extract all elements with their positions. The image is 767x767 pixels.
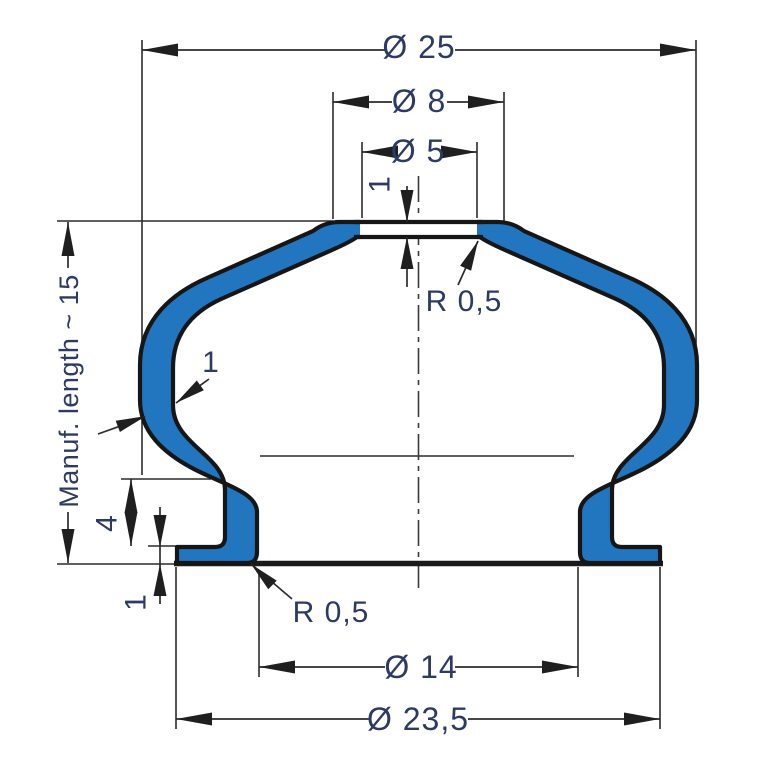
dim-flange1-arrow-down bbox=[154, 515, 167, 547]
dim-dia5: Ø 5 bbox=[362, 133, 477, 169]
dim-dia14-arrow-right bbox=[542, 661, 578, 674]
dim-step-arrow-down bbox=[125, 512, 138, 546]
bellows-right-half bbox=[477, 222, 697, 563]
dim-dia25-arrow-right bbox=[660, 44, 696, 57]
dim-dia5-label: Ø 5 bbox=[391, 133, 446, 169]
dim-dia235-label: Ø 23,5 bbox=[367, 701, 469, 737]
leader-radius-bottom-label: R 0,5 bbox=[293, 596, 370, 629]
dim-dia14: Ø 14 bbox=[259, 649, 578, 685]
dim-dia25-label: Ø 25 bbox=[382, 29, 455, 65]
dim-dia14-arrow-left bbox=[259, 661, 295, 674]
dim-manuf-length: Manuf. length ~ 15 bbox=[54, 222, 84, 563]
technical-drawing: Ø 25 Ø 8 Ø 5 1 R 0,5 Manuf. length ~ 15 bbox=[0, 0, 767, 767]
leader-radius-bottom-arrow bbox=[251, 564, 277, 589]
dim-dia8-arrow-left bbox=[333, 96, 369, 109]
dim-step-label: 4 bbox=[91, 514, 124, 532]
dim-dia14-label: Ø 14 bbox=[384, 649, 457, 685]
dim-dia235-arrow-left bbox=[176, 713, 212, 726]
bellows-left-half bbox=[140, 222, 360, 563]
dim-dia5-arrow-right bbox=[441, 146, 477, 159]
dim-mem1-arrow-up bbox=[401, 237, 414, 269]
drawing-canvas: Ø 25 Ø 8 Ø 5 1 R 0,5 Manuf. length ~ 15 bbox=[0, 0, 767, 767]
leader-radius-bottom: R 0,5 bbox=[251, 564, 369, 629]
dim-flange1-label: 1 bbox=[120, 593, 153, 611]
dim-manuf-arrow-down bbox=[62, 529, 75, 563]
dim-dia8: Ø 8 bbox=[333, 83, 504, 119]
dim-dia235: Ø 23,5 bbox=[176, 701, 660, 737]
top-membrane bbox=[354, 218, 483, 239]
leader-wall-inner-arrow bbox=[176, 381, 204, 404]
dim-manuf-label: Manuf. length ~ 15 bbox=[54, 274, 84, 507]
leader-wall-label: 1 bbox=[202, 346, 220, 379]
leader-radius-top-label: R 0,5 bbox=[426, 285, 503, 318]
dim-dia25-arrow-left bbox=[142, 44, 178, 57]
dim-manuf-arrow-up bbox=[62, 222, 75, 256]
dim-dia8-arrow-right bbox=[468, 96, 504, 109]
dim-step-height: 4 bbox=[91, 479, 138, 546]
dim-dia25: Ø 25 bbox=[142, 29, 696, 65]
leader-radius-top-arrow bbox=[460, 241, 478, 271]
dim-dia235-arrow-right bbox=[624, 713, 660, 726]
dim-flange1-arrow-up bbox=[154, 564, 167, 596]
dim-mem1-arrow-down bbox=[401, 190, 414, 222]
dim-step-arrow-up bbox=[125, 479, 138, 513]
dim-mem1-label: 1 bbox=[364, 175, 397, 193]
leader-radius-top: R 0,5 bbox=[426, 241, 503, 318]
dim-dia8-label: Ø 8 bbox=[392, 83, 447, 119]
